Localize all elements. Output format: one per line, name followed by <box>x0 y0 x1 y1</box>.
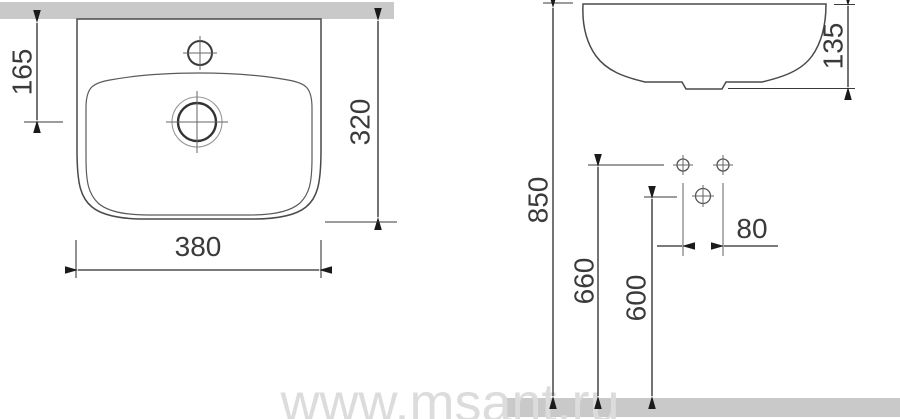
dim-label-165: 165 <box>7 49 38 96</box>
fixing-hole-left <box>673 155 693 175</box>
drawing-canvas: www.msant.ru 165 <box>0 0 900 419</box>
dimension-600: 600 <box>621 197 678 396</box>
dim-label-135: 135 <box>818 23 849 70</box>
watermark: www.msant.ru <box>279 373 619 419</box>
dimension-850: 850 <box>523 3 574 396</box>
dim-label-320: 320 <box>345 99 376 146</box>
dim-label-600: 600 <box>621 275 652 322</box>
dim-label-380: 380 <box>175 231 222 262</box>
sink-outer-outline <box>77 19 321 219</box>
dim-label-80: 80 <box>736 213 767 244</box>
dimension-80: 80 <box>657 213 778 246</box>
fixing-hole-right <box>713 155 733 175</box>
top-view: 165 320 380 <box>7 19 398 278</box>
basin-profile-outline <box>583 4 826 89</box>
dimension-380: 380 <box>76 231 321 278</box>
dimension-165: 165 <box>7 23 64 122</box>
drain-outlet-hole <box>692 185 714 207</box>
dim-label-850: 850 <box>523 177 554 224</box>
wall-surface <box>0 2 394 19</box>
dim-label-660: 660 <box>569 258 600 305</box>
dimension-320: 320 <box>325 21 397 222</box>
front-view: 135 850 660 600 <box>523 3 856 396</box>
